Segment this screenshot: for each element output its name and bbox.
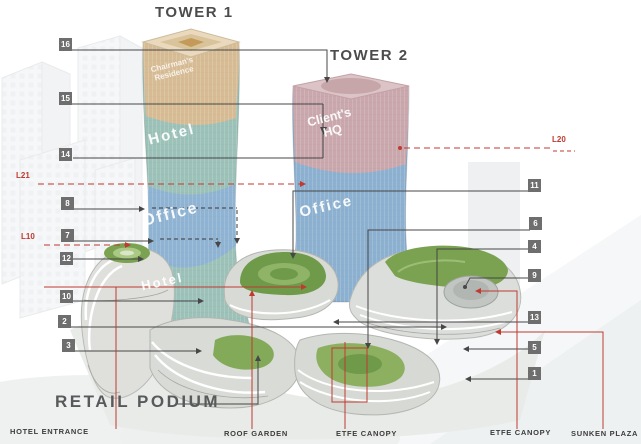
tower1-title: TOWER 1 [155,4,234,21]
callout-box-13: 13 [528,311,541,324]
callout-box-8: 8 [61,197,74,210]
callout-box-16: 16 [59,38,72,51]
callout-box-3: 3 [62,339,75,352]
callout-box-2: 2 [58,315,71,328]
tower2-title: TOWER 2 [330,47,409,64]
callout-box-7: 7 [61,229,74,242]
callout-box-6: 6 [529,217,542,230]
etfe-canopy-label-2: ETFE CANOPY [490,428,551,437]
callout-box-4: 4 [528,240,541,253]
hotel-entrance-label: HOTEL ENTRANCE [10,427,89,436]
callout-box-1: 1 [528,367,541,380]
sunken-plaza-label: SUNKEN PLAZA [571,429,638,438]
callout-box-5: 5 [528,341,541,354]
level-marker-l21: L21 [16,171,30,180]
callout-box-12: 12 [60,252,73,265]
callout-box-14: 14 [59,148,72,161]
level-marker-l10: L10 [21,232,35,241]
l20-anchor-dot [398,146,402,150]
callout-box-10: 10 [60,290,73,303]
axonometric-diagram: TOWER 1 TOWER 2 RETAIL PODIUM Chairman's… [0,0,641,444]
illustration-canvas [0,0,641,444]
callout-box-9: 9 [528,269,541,282]
callout-box-11: 11 [528,179,541,192]
level-marker-l20: L20 [552,135,566,144]
retail-podium-title: RETAIL PODIUM [55,392,220,412]
etfe-canopy-label-1: ETFE CANOPY [336,429,397,438]
callout-box-15: 15 [59,92,72,105]
roof-garden-label: ROOF GARDEN [224,429,288,438]
